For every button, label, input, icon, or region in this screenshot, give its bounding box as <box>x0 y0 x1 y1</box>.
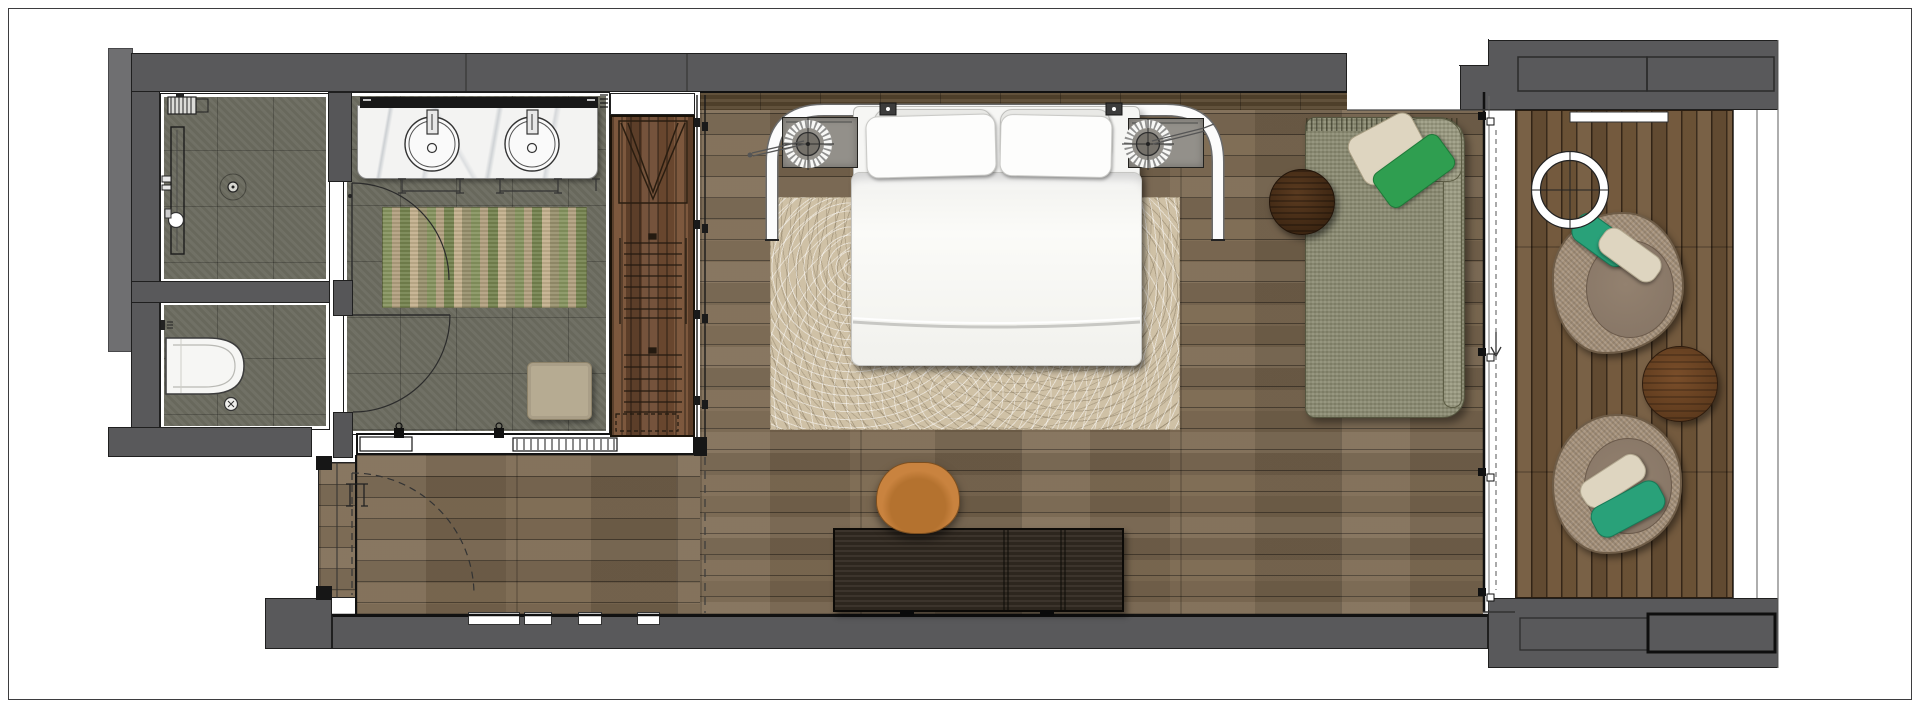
daybed-side-table <box>1269 169 1335 235</box>
corridor-wood-floor <box>356 455 700 615</box>
wall-niche <box>637 612 660 625</box>
wc-floor <box>160 301 330 430</box>
shower-wc-divider-wall <box>131 281 330 303</box>
shower-room-floor <box>160 93 330 283</box>
balcony-round-table <box>1642 346 1718 422</box>
entry-side-wall <box>265 598 332 649</box>
wc-bottom-wall <box>108 427 312 457</box>
wc-wall-upper <box>333 280 353 316</box>
floor-plan-canvas <box>0 0 1920 708</box>
double-vanity-counter <box>357 105 598 179</box>
ottoman-stool <box>527 362 592 420</box>
nightstand-left <box>782 117 858 168</box>
left-wall <box>131 53 160 457</box>
wc-wall-lower <box>333 412 353 458</box>
wall-niche <box>524 612 552 625</box>
balcony-header-planter <box>1460 40 1778 110</box>
balcony-header-notch <box>1459 39 1489 66</box>
writing-desk <box>833 528 1124 612</box>
exterior-wall-band <box>108 48 133 352</box>
wall-niche <box>578 612 602 625</box>
nightstand-right <box>1128 118 1204 168</box>
closet-niche <box>610 93 695 115</box>
balcony-edge-strip <box>1733 110 1757 598</box>
wall-niche <box>468 612 520 625</box>
pillow-front-right <box>999 114 1112 178</box>
wardrobe <box>610 115 695 437</box>
pillow-front-left <box>865 113 997 178</box>
top-wall <box>131 53 1347 92</box>
desk-chair <box>876 462 960 534</box>
balcony-footer-planter <box>1488 598 1778 668</box>
striped-runner-rug <box>382 207 587 308</box>
bathroom-pillar-wall <box>328 92 352 182</box>
duvet <box>851 172 1142 366</box>
entry-door-leaf <box>318 462 356 598</box>
